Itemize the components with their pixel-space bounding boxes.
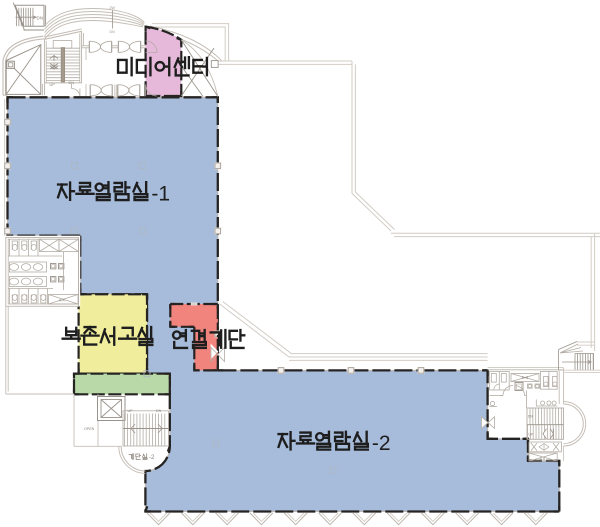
svg-text:DN: DN	[110, 30, 116, 34]
svg-text:-1: -1	[151, 183, 170, 206]
svg-text:UP: UP	[529, 433, 534, 437]
svg-text:-2: -2	[149, 455, 155, 461]
svg-text:A-A: A-A	[540, 457, 546, 461]
svg-text:DN: DN	[528, 415, 533, 419]
svg-text:UP: UP	[128, 409, 134, 413]
svg-text:OPEN: OPEN	[84, 427, 95, 431]
svg-text:2W: 2W	[110, 6, 116, 10]
svg-text:DN: DN	[37, 15, 44, 20]
svg-text:-2: -2	[372, 432, 391, 455]
svg-text:DN: DN	[156, 409, 162, 413]
svg-text:A-A: A-A	[59, 299, 65, 303]
svg-text:UP: UP	[50, 83, 56, 87]
